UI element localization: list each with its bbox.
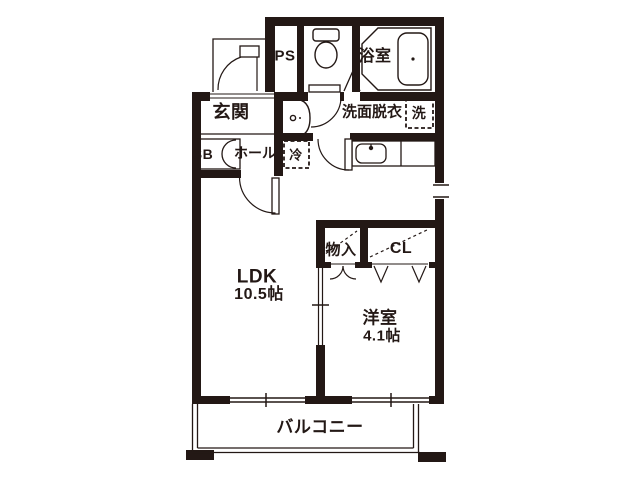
label-western-room-size: 4.1帖 [363, 329, 401, 344]
bathtub-fixture [398, 33, 428, 85]
label-shoe-box: SB [193, 147, 213, 161]
label-western-room: 洋室 [363, 310, 398, 327]
label-balcony: バルコニー [276, 419, 363, 436]
label-washroom: 洗面脱衣 [342, 105, 402, 120]
washbasin-fixture [284, 99, 310, 137]
label-entrance: 玄関 [213, 103, 250, 121]
entrance-door [218, 46, 259, 91]
floor-plan-drawing [0, 0, 640, 480]
side-window [433, 185, 449, 197]
label-bathroom: 浴室 [358, 49, 391, 65]
label-ldk-size: 10.5帖 [234, 287, 284, 303]
ldk-window [230, 393, 305, 407]
label-closet: CL [390, 241, 412, 257]
label-refrigerator: 冷 [289, 149, 303, 162]
sliding-door [312, 263, 329, 345]
kitchen-counter [352, 141, 435, 166]
floor-plan: PS 浴室 玄関 洗面脱衣 洗 SB ホール 冷 LDK 10.5帖 物入 CL… [0, 0, 640, 480]
ldk-door [240, 177, 280, 214]
kitchen-door [318, 139, 352, 170]
label-washing-machine: 洗 [412, 106, 427, 120]
label-hall: ホール [234, 146, 276, 160]
toilet-door [309, 85, 341, 127]
western-room-window [352, 393, 429, 407]
label-ps: PS [274, 49, 295, 64]
closet-bifold-doors [372, 264, 428, 282]
toilet-fixture [313, 29, 339, 68]
label-storage: 物入 [325, 243, 356, 258]
storage-double-doors [330, 264, 356, 279]
label-ldk: LDK [237, 268, 278, 287]
